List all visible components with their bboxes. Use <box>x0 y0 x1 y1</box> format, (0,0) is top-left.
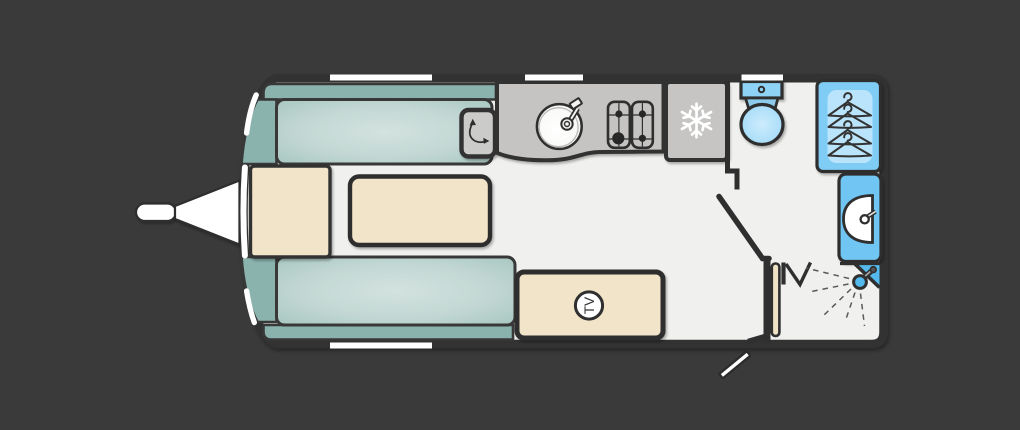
svg-text:TV: TV <box>582 297 597 314</box>
